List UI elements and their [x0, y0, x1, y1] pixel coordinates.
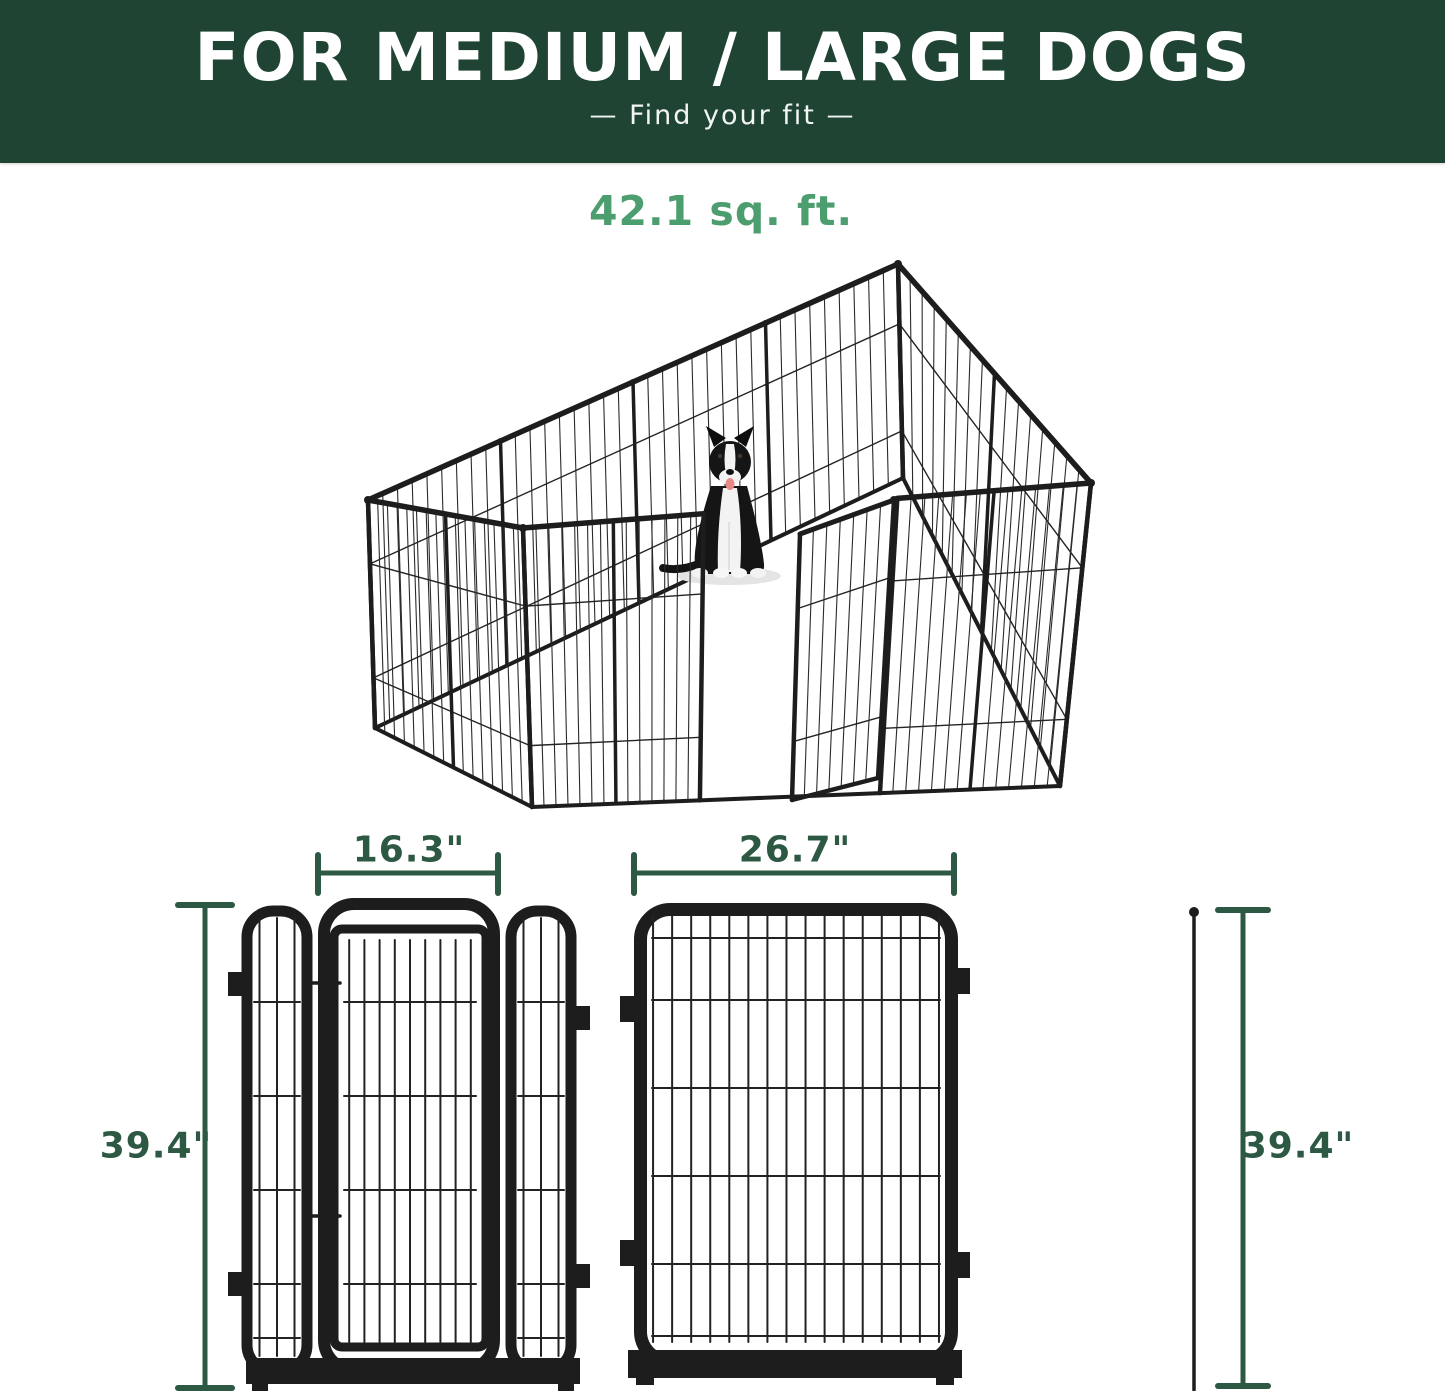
panel-dimension-diagrams: [0, 830, 1445, 1391]
gate-panel-diagram: [228, 904, 590, 1391]
playpen-isometric-illustration: [345, 248, 1105, 823]
pen-open-gate: [792, 500, 894, 800]
height-dimension-label-left: 39.4": [100, 1126, 213, 1167]
pen-right-wall: [898, 264, 1091, 786]
panel-side-profile: [1189, 907, 1199, 1390]
panel-width-dimension-label: 26.7": [739, 830, 852, 871]
pen-left-wall: [368, 500, 532, 807]
height-dimension-label-right: 39.4": [1242, 1126, 1355, 1167]
page-title: FOR MEDIUM / LARGE DOGS: [0, 0, 1445, 91]
header-banner: FOR MEDIUM / LARGE DOGS — Find your fit …: [0, 0, 1445, 163]
page-subtitle: — Find your fit —: [0, 100, 1445, 131]
product-infographic: FOR MEDIUM / LARGE DOGS — Find your fit …: [0, 0, 1445, 1391]
dog-illustration: [663, 426, 766, 578]
area-size-label: 42.1 sq. ft.: [589, 187, 853, 235]
pen-back-wall: [368, 264, 903, 728]
gate-width-dimension-label: 16.3": [353, 830, 466, 871]
wide-panel-diagram: [620, 910, 970, 1386]
